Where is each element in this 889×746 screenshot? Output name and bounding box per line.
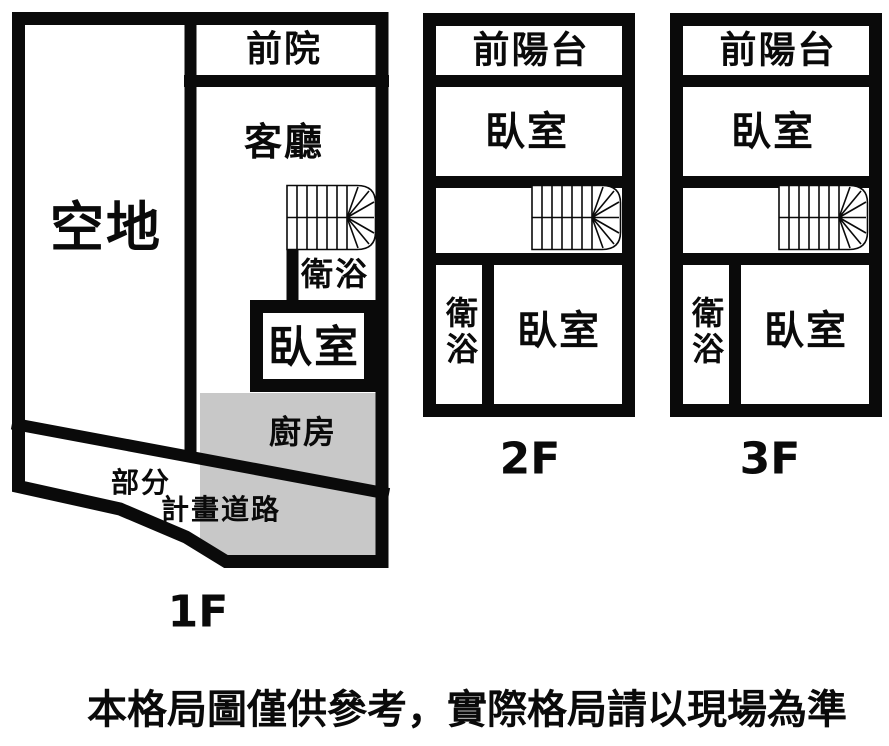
- room-label-front-balcony-2f: 前陽台: [473, 32, 590, 69]
- room-label-bathroom-1f: 衛浴: [301, 258, 369, 290]
- road-label-line2: 計畫道路: [161, 496, 281, 524]
- room-label-bedroom-front-2f: 臥室: [485, 112, 569, 152]
- stairs-2f: [532, 186, 621, 250]
- floor-caption-2f: 2F: [500, 434, 561, 485]
- floor-plan-page: 空地 前院 客廳 衛浴 臥室 廚房 部分 計畫道路 1F 前陽台 臥室 衛浴 臥…: [0, 0, 889, 746]
- disclaimer-text: 本格局圖僅供參考，實際格局請以現場為準: [87, 677, 847, 735]
- floor-caption-3f: 3F: [740, 434, 801, 485]
- stairs-1f: [287, 186, 376, 250]
- room-label-bedroom-1f: 臥室: [268, 326, 360, 370]
- room-label-bedroom-front-3f: 臥室: [731, 112, 815, 152]
- room-label-bathroom-3f: 衛浴: [690, 296, 722, 368]
- floor-caption-1f: 1F: [168, 587, 229, 638]
- room-label-kitchen: 廚房: [269, 416, 337, 448]
- room-label-open-land: 空地: [50, 201, 162, 255]
- room-label-bathroom-2f: 衛浴: [444, 296, 476, 368]
- stairs-3f: [779, 186, 868, 250]
- room-label-living-room: 客廳: [244, 123, 324, 161]
- room-label-bedroom-rear-2f: 臥室: [517, 311, 601, 351]
- room-label-front-balcony-3f: 前陽台: [720, 32, 837, 69]
- room-label-bedroom-rear-3f: 臥室: [764, 311, 848, 351]
- room-label-front-yard: 前院: [246, 32, 322, 68]
